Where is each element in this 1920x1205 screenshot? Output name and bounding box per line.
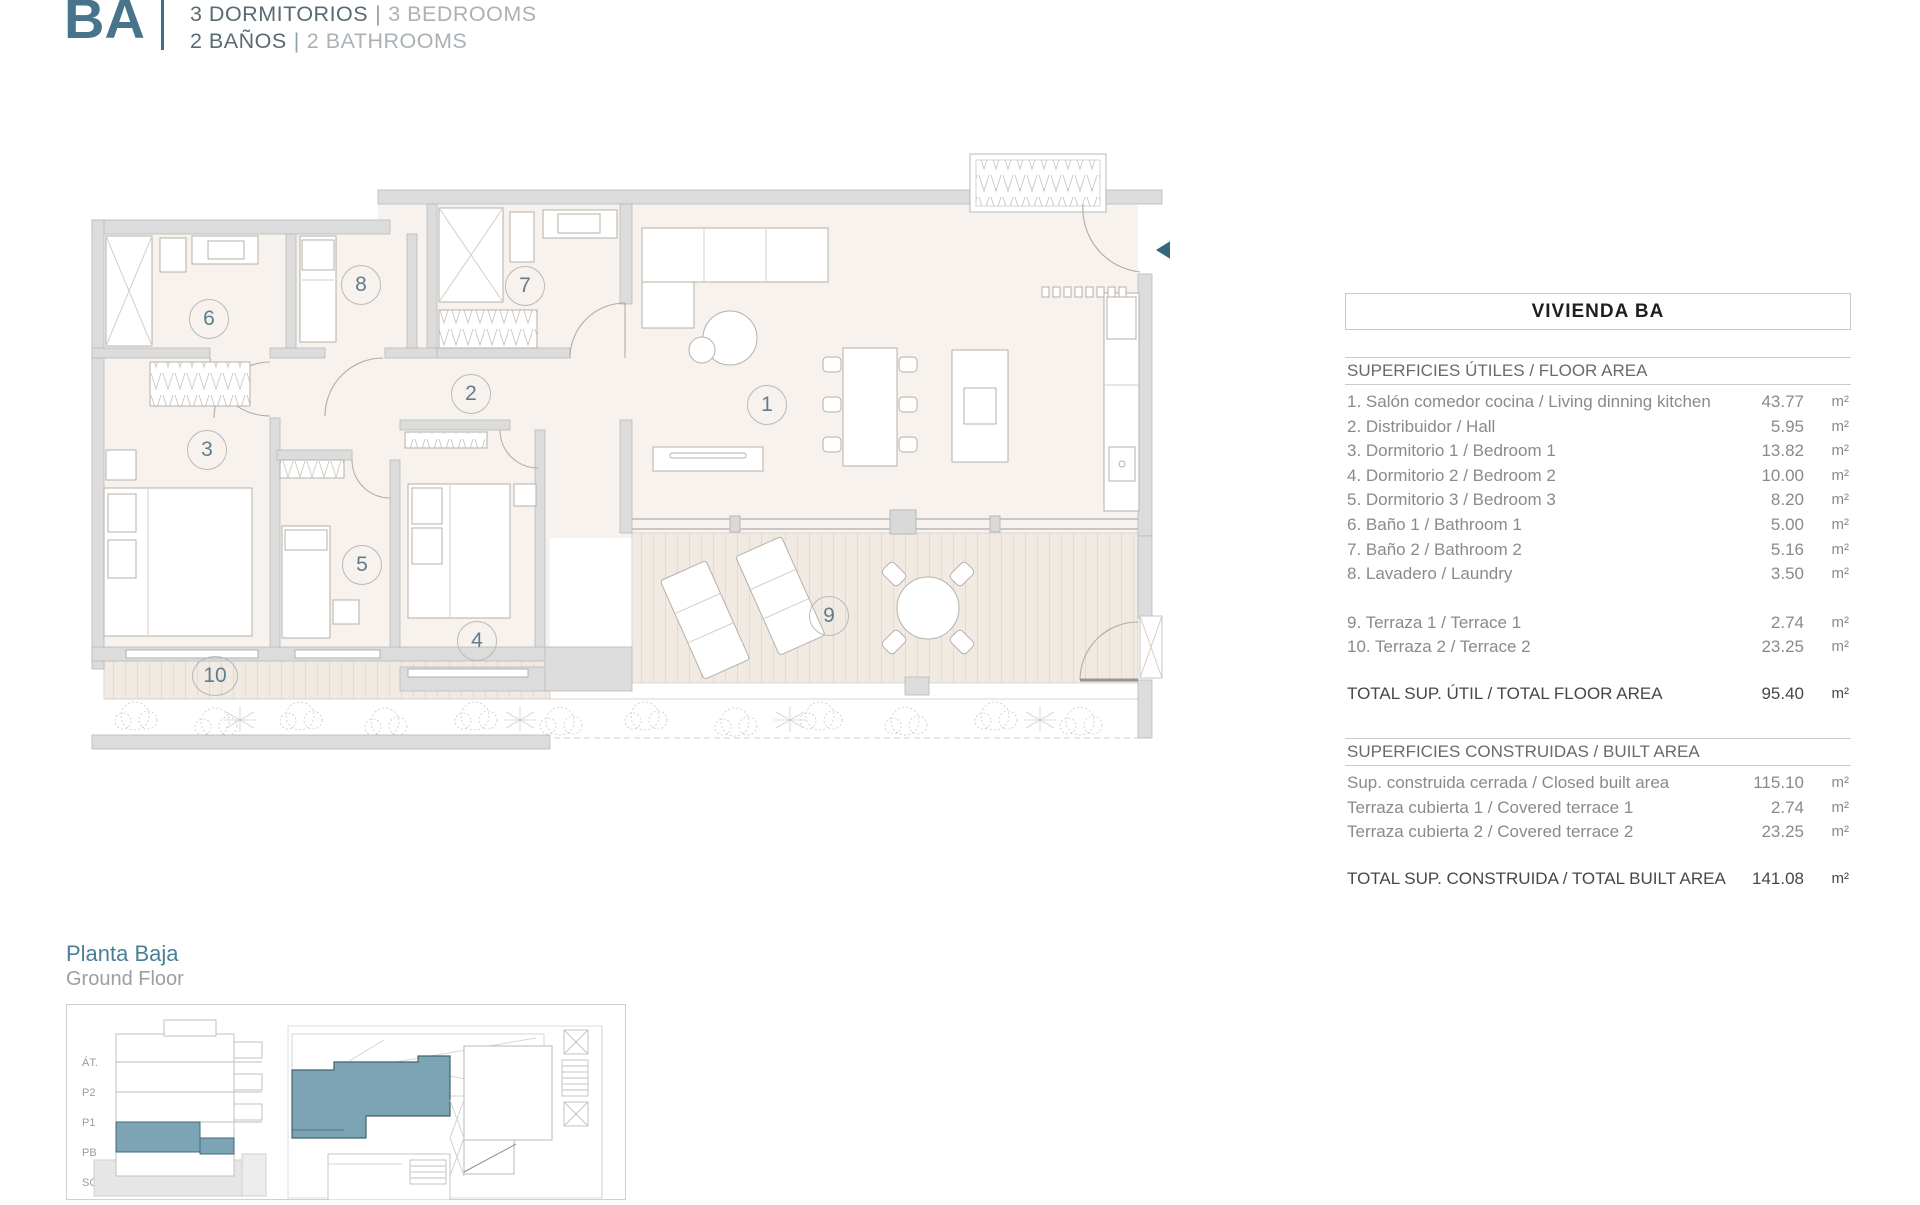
level-label-pb: PB xyxy=(82,1147,97,1159)
row-value: 3.50 xyxy=(1744,562,1804,587)
spec-line-bedrooms: 3 DORMITORIOS|3 BEDROOMS xyxy=(190,1,537,28)
row-label: 2. Distribuidor / Hall xyxy=(1347,415,1744,440)
floor-area-section-header: SUPERFICIES ÚTILES / FLOOR AREA xyxy=(1345,357,1851,385)
row-value: 5.95 xyxy=(1744,415,1804,440)
row-value: 23.25 xyxy=(1744,820,1804,845)
row-unit: m² xyxy=(1804,611,1849,636)
room-label-1: 1 xyxy=(747,385,787,425)
highlighted-level-pb xyxy=(116,1122,200,1152)
row-unit: m² xyxy=(1804,796,1849,821)
room-label-2: 2 xyxy=(451,374,491,414)
row-unit: m² xyxy=(1804,538,1849,563)
planting-strip xyxy=(104,699,1150,738)
room-label-5: 5 xyxy=(342,545,382,585)
room-label-4: 4 xyxy=(457,621,497,661)
row-label: 5. Dormitorio 3 / Bedroom 3 xyxy=(1347,488,1744,513)
row-unit: m² xyxy=(1804,390,1849,415)
room-label-6: 6 xyxy=(189,299,229,339)
row-unit: m² xyxy=(1804,681,1849,706)
unit-code-logo: BA xyxy=(64,0,145,51)
row-label: 4. Dormitorio 2 / Bedroom 2 xyxy=(1347,464,1744,489)
spec-en: 2 BATHROOMS xyxy=(307,29,467,53)
row-label: 10. Terraza 2 / Terrace 2 xyxy=(1347,635,1744,660)
row-label: 3. Dormitorio 1 / Bedroom 1 xyxy=(1347,439,1744,464)
room-label-9: 9 xyxy=(809,596,849,636)
room-label-7: 7 xyxy=(505,266,545,306)
row-label: 9. Terraza 1 / Terrace 1 xyxy=(1347,611,1744,636)
row-unit: m² xyxy=(1804,464,1849,489)
header-divider xyxy=(161,0,164,50)
table-row: 3. Dormitorio 1 / Bedroom 113.82m² xyxy=(1345,439,1851,464)
total-floor-area-row: TOTAL SUP. ÚTIL / TOTAL FLOOR AREA95.40m… xyxy=(1345,681,1851,706)
row-unit: m² xyxy=(1804,820,1849,845)
table-row: 9. Terraza 1 / Terrace 12.74m² xyxy=(1345,611,1851,636)
total-built-area-row: TOTAL SUP. CONSTRUIDA / TOTAL BUILT AREA… xyxy=(1345,866,1851,891)
room-label-8: 8 xyxy=(341,265,381,305)
plan-sheet: { "header": { "unit_code": "BA", "specs"… xyxy=(0,0,1920,1200)
floor-name-en: Ground Floor xyxy=(66,967,184,991)
row-value: 2.74 xyxy=(1744,611,1804,636)
row-value: 5.16 xyxy=(1744,538,1804,563)
entry-arrow-icon xyxy=(1156,235,1170,265)
areas-table: VIVIENDA BA SUPERFICIES ÚTILES / FLOOR A… xyxy=(1345,293,1851,891)
spec-separator: | xyxy=(368,2,388,26)
row-value: 43.77 xyxy=(1744,390,1804,415)
room-label-3: 3 xyxy=(187,430,227,470)
row-label: 1. Salón comedor cocina / Living dinning… xyxy=(1347,390,1744,415)
table-row: 1. Salón comedor cocina / Living dinning… xyxy=(1345,390,1851,415)
level-label-atico: ÁT. xyxy=(82,1056,98,1069)
table-row: Sup. construida cerrada / Closed built a… xyxy=(1345,771,1851,796)
row-value: 5.00 xyxy=(1744,513,1804,538)
floor-name: Planta Baja Ground Floor xyxy=(66,941,184,991)
table-row: 5. Dormitorio 3 / Bedroom 38.20m² xyxy=(1345,488,1851,513)
row-label: 6. Baño 1 / Bathroom 1 xyxy=(1347,513,1744,538)
spec-en: 3 BEDROOMS xyxy=(388,2,536,26)
floor-plan-drawing xyxy=(90,150,1170,765)
spec-es: 3 DORMITORIOS xyxy=(190,2,368,26)
row-value: 13.82 xyxy=(1744,439,1804,464)
row-unit: m² xyxy=(1804,415,1849,440)
key-plan: ÁT. P2 P1 PB SÓT. xyxy=(66,1004,626,1200)
built-area-section-header: SUPERFICIES CONSTRUIDAS / BUILT AREA xyxy=(1345,738,1851,766)
table-row: 8. Lavadero / Laundry3.50m² xyxy=(1345,562,1851,587)
row-label: Terraza cubierta 2 / Covered terrace 2 xyxy=(1347,820,1744,845)
room-label-10: 10 xyxy=(192,656,238,696)
balcony-planter xyxy=(970,154,1106,212)
row-label: 8. Lavadero / Laundry xyxy=(1347,562,1744,587)
table-row: 6. Baño 1 / Bathroom 15.00m² xyxy=(1345,513,1851,538)
table-row: 7. Baño 2 / Bathroom 25.16m² xyxy=(1345,538,1851,563)
key-plan-drawing: ÁT. P2 P1 PB SÓT. xyxy=(66,1004,626,1200)
row-label: Sup. construida cerrada / Closed built a… xyxy=(1347,771,1744,796)
level-label-p2: P2 xyxy=(82,1087,95,1099)
spec-es: 2 BAÑOS xyxy=(190,29,287,53)
row-label: 7. Baño 2 / Bathroom 2 xyxy=(1347,538,1744,563)
row-value: 23.25 xyxy=(1744,635,1804,660)
row-unit: m² xyxy=(1804,513,1849,538)
floor-name-es: Planta Baja xyxy=(66,941,184,967)
row-value: 141.08 xyxy=(1744,866,1804,891)
table-row: 4. Dormitorio 2 / Bedroom 210.00m² xyxy=(1345,464,1851,489)
row-unit: m² xyxy=(1804,866,1849,891)
row-label: Terraza cubierta 1 / Covered terrace 1 xyxy=(1347,796,1744,821)
row-value: 115.10 xyxy=(1744,771,1804,796)
table-title: VIVIENDA BA xyxy=(1345,293,1851,330)
row-unit: m² xyxy=(1804,771,1849,796)
table-row: 10. Terraza 2 / Terrace 223.25m² xyxy=(1345,635,1851,660)
row-unit: m² xyxy=(1804,635,1849,660)
spec-line-bathrooms: 2 BAÑOS|2 BATHROOMS xyxy=(190,28,537,55)
table-row: Terraza cubierta 2 / Covered terrace 223… xyxy=(1345,820,1851,845)
table-row: 2. Distribuidor / Hall5.95m² xyxy=(1345,415,1851,440)
row-label: TOTAL SUP. ÚTIL / TOTAL FLOOR AREA xyxy=(1347,681,1744,706)
spec-separator: | xyxy=(287,29,307,53)
row-label: TOTAL SUP. CONSTRUIDA / TOTAL BUILT AREA xyxy=(1347,866,1744,891)
row-value: 8.20 xyxy=(1744,488,1804,513)
row-value: 10.00 xyxy=(1744,464,1804,489)
row-unit: m² xyxy=(1804,488,1849,513)
table-row: Terraza cubierta 1 / Covered terrace 12.… xyxy=(1345,796,1851,821)
floor-plan: 1 2 3 4 5 6 7 8 9 10 xyxy=(90,150,1170,765)
row-value: 95.40 xyxy=(1744,681,1804,706)
building-section-diagram xyxy=(94,1020,266,1196)
unit-specs: 3 DORMITORIOS|3 BEDROOMS 2 BAÑOS|2 BATHR… xyxy=(190,1,537,55)
row-unit: m² xyxy=(1804,439,1849,464)
row-value: 2.74 xyxy=(1744,796,1804,821)
level-label-p1: P1 xyxy=(82,1117,95,1129)
row-unit: m² xyxy=(1804,562,1849,587)
